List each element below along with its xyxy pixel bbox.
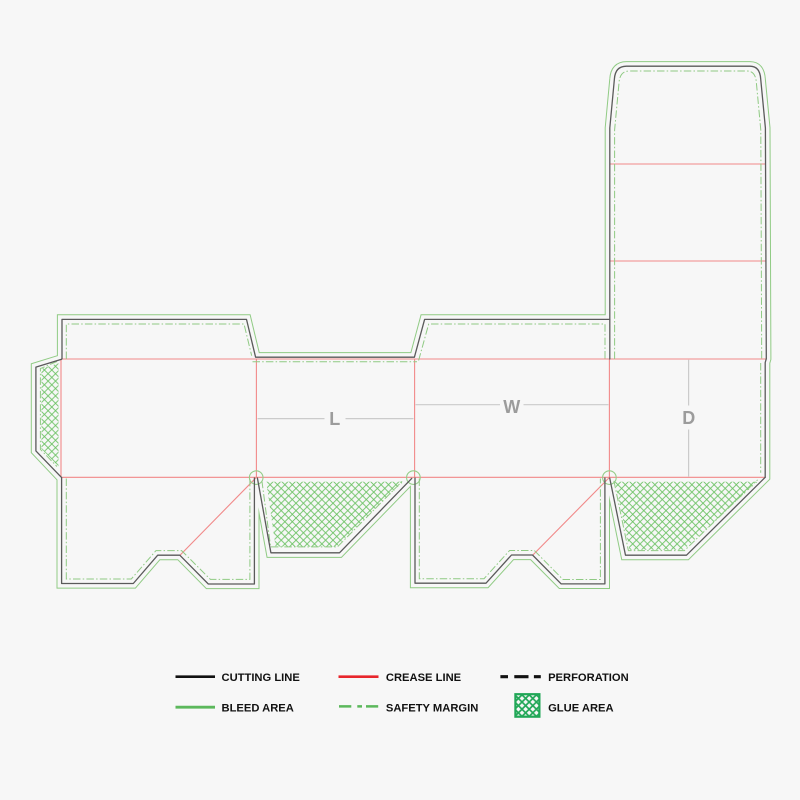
- svg-text:L: L: [329, 409, 340, 429]
- svg-text:BLEED AREA: BLEED AREA: [222, 702, 294, 714]
- svg-text:GLUE AREA: GLUE AREA: [548, 702, 613, 714]
- svg-text:CUTTING LINE: CUTTING LINE: [222, 672, 301, 684]
- svg-text:CREASE LINE: CREASE LINE: [386, 672, 462, 684]
- svg-text:PERFORATION: PERFORATION: [548, 672, 629, 684]
- svg-text:W: W: [503, 397, 520, 417]
- svg-text:D: D: [682, 408, 695, 428]
- svg-text:SAFETY MARGIN: SAFETY MARGIN: [386, 702, 478, 714]
